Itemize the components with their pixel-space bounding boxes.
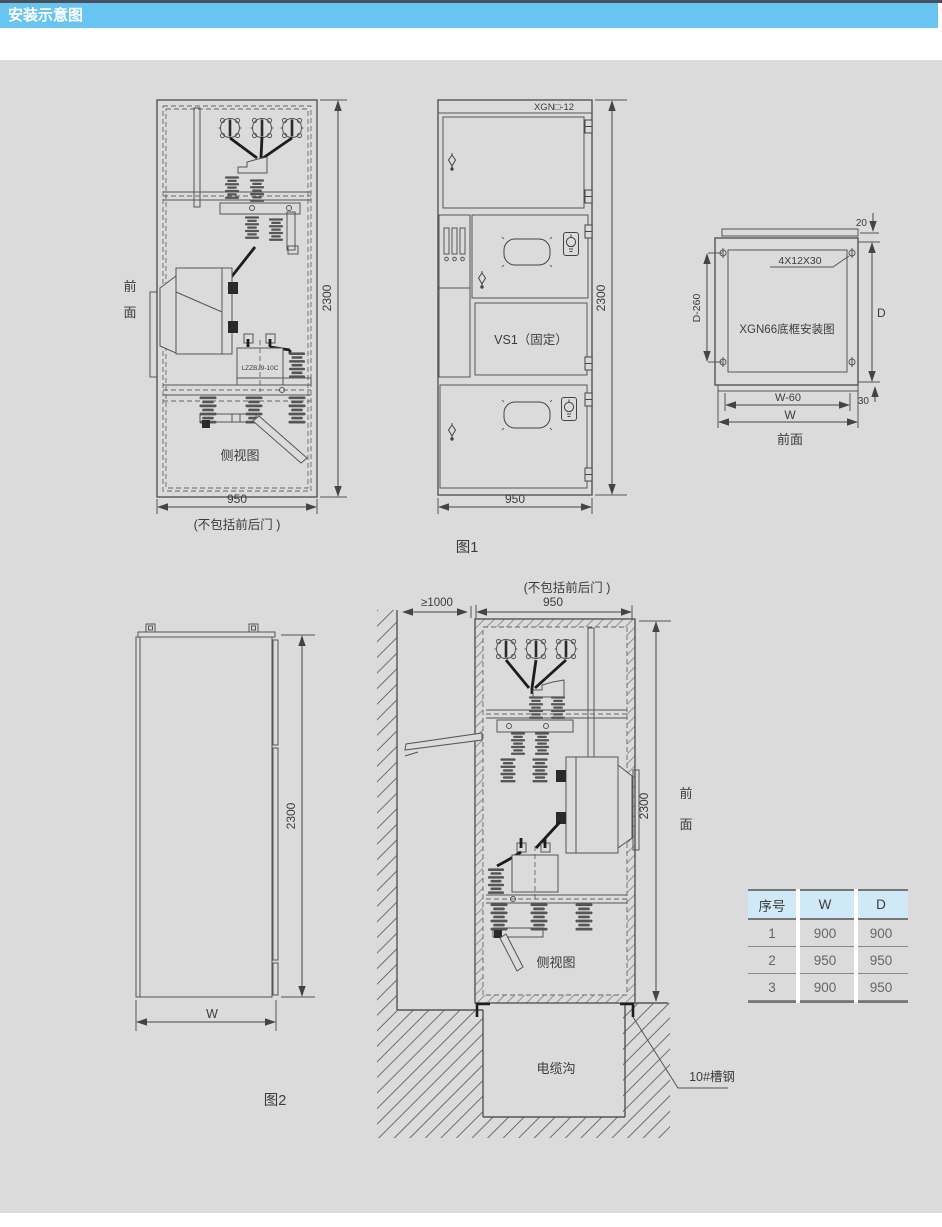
base-frame-diagram: 20 4X12X30 XGN66底框安装图 D-260 D 30 W-60 W … bbox=[691, 213, 886, 447]
table-cell: 900 bbox=[854, 926, 908, 941]
table-cell: 2 bbox=[748, 953, 796, 968]
frame-dim-20: 20 bbox=[856, 218, 868, 229]
table-cell: 3 bbox=[748, 980, 796, 995]
table-row: 3 900 950 bbox=[748, 974, 908, 1001]
fig1-side-dim-width: 950 bbox=[227, 492, 247, 506]
fig1-side-view-label: 侧视图 bbox=[220, 448, 259, 463]
table-header-d: D bbox=[854, 897, 908, 912]
fig2-dim-height: 2300 bbox=[284, 802, 298, 829]
fig2-caption: 图2 bbox=[264, 1093, 287, 1109]
table-cell: 950 bbox=[854, 953, 908, 968]
inst-dim-width: 950 bbox=[543, 595, 563, 609]
table-cell: 950 bbox=[854, 980, 908, 995]
table-header-index: 序号 bbox=[748, 895, 796, 915]
table-cell: 950 bbox=[796, 953, 854, 968]
installation-view: ≥1000 (不包括前后门 ) 950 2300 前 面 侧视图 电缆沟 10#… bbox=[377, 580, 735, 1138]
frame-title: XGN66底框安装图 bbox=[739, 322, 834, 336]
table-row: 1 900 900 bbox=[748, 920, 908, 947]
inst-front-label-bottom: 面 bbox=[679, 817, 692, 832]
frame-dim-d260: D-260 bbox=[691, 294, 703, 323]
frame-dim-w60: W-60 bbox=[775, 392, 801, 404]
inst-dim-height: 2300 bbox=[637, 792, 651, 819]
table-column-gap bbox=[796, 889, 800, 1003]
inst-side-view-label: 侧视图 bbox=[536, 955, 575, 970]
fig1-front-dim-width: 950 bbox=[505, 492, 525, 506]
technical-drawing: 2300 950 (不包括前后门 ) 前 面 侧视图 LZZBJ9-10C bbox=[0, 0, 942, 1227]
table-column-gap bbox=[854, 889, 858, 1003]
fig1-front-dim-height: 2300 bbox=[594, 284, 608, 311]
fig1-front-label-bottom: 面 bbox=[123, 305, 136, 320]
fig1-front-view: VS1（固定） XGN□-12 2300 950 图1 bbox=[438, 100, 627, 556]
frame-dim-d: D bbox=[877, 306, 886, 320]
inst-door-note: (不包括前后门 ) bbox=[524, 580, 611, 595]
table-cell: 900 bbox=[796, 980, 854, 995]
inst-channel-label: 10#槽钢 bbox=[689, 1070, 735, 1084]
fig2-cabinet-outline: 2300 W 图2 bbox=[136, 624, 315, 1109]
frame-caption: 前面 bbox=[777, 432, 803, 447]
catalog-page: 安装示意图 bbox=[0, 0, 942, 1227]
fig1-side-view: 2300 950 (不包括前后门 ) 前 面 侧视图 LZZBJ9-10C bbox=[123, 100, 347, 532]
inst-front-label-top: 前 bbox=[679, 786, 692, 801]
table-cell: 1 bbox=[748, 926, 796, 941]
fig1-door-note: (不包括前后门 ) bbox=[194, 517, 281, 532]
inst-clearance: ≥1000 bbox=[421, 597, 453, 609]
fig1-model-label: XGN□-12 bbox=[534, 102, 574, 113]
table-header-w: W bbox=[796, 897, 854, 912]
frame-dim-30: 30 bbox=[858, 396, 870, 407]
frame-bolt-label: 4X12X30 bbox=[778, 255, 821, 267]
table-row: 2 950 950 bbox=[748, 947, 908, 974]
fig1-side-dim-height: 2300 bbox=[320, 284, 334, 311]
table-header-row: 序号 W D bbox=[748, 891, 908, 920]
fig1-vs1-label: VS1（固定） bbox=[494, 332, 568, 347]
fig2-dim-width: W bbox=[206, 1007, 218, 1021]
inst-trench-label: 电缆沟 bbox=[536, 1061, 575, 1076]
wd-table: 序号 W D 1 900 900 2 950 950 3 900 950 bbox=[748, 889, 908, 1003]
fig1-caption: 图1 bbox=[456, 540, 479, 556]
frame-dim-w: W bbox=[784, 408, 796, 422]
table-cell: 900 bbox=[796, 926, 854, 941]
fig1-front-label-top: 前 bbox=[123, 279, 136, 294]
fig1-ct-label: LZZBJ9-10C bbox=[242, 365, 279, 372]
